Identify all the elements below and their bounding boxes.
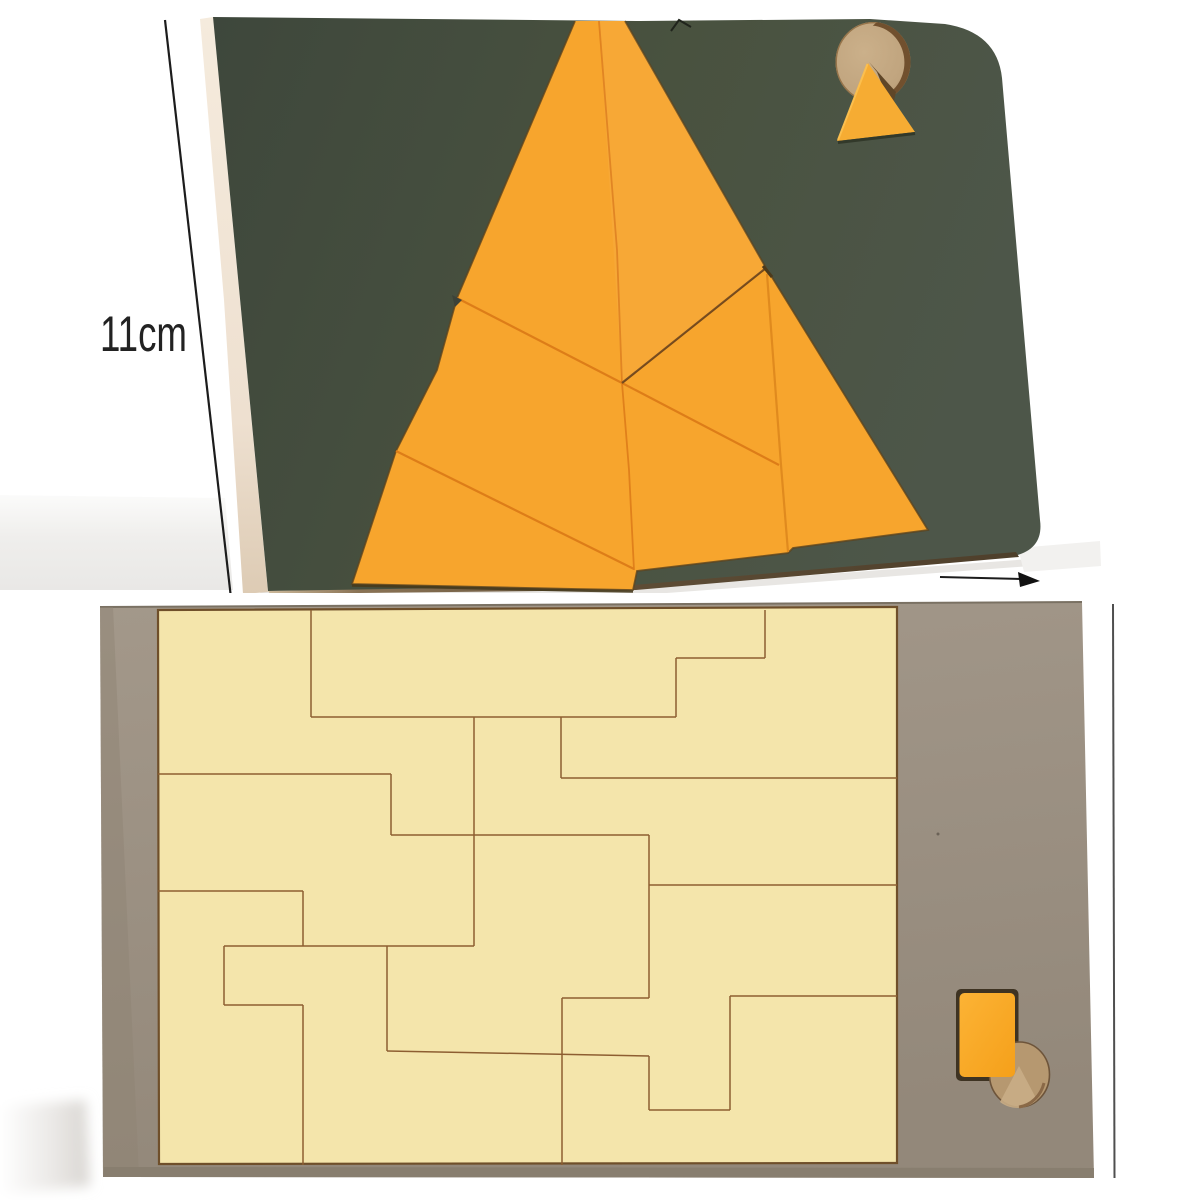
svg-text:11cm: 11cm <box>100 306 187 362</box>
